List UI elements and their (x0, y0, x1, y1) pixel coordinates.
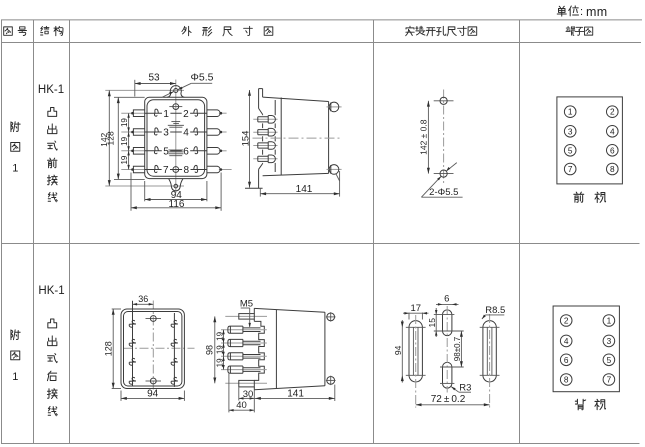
svg-text:53: 53 (148, 72, 160, 83)
svg-text:40: 40 (236, 400, 247, 411)
svg-text:1: 1 (163, 109, 169, 120)
svg-text:94: 94 (393, 345, 403, 355)
svg-text:8: 8 (610, 164, 615, 174)
svg-text:116: 116 (169, 199, 185, 210)
svg-text:2: 2 (610, 107, 615, 117)
svg-text:2: 2 (564, 316, 569, 326)
svg-text:98±0.7: 98±0.7 (453, 336, 462, 361)
svg-text:6: 6 (444, 294, 449, 305)
svg-text:142 ± 0.8: 142 ± 0.8 (419, 119, 429, 155)
svg-text:7: 7 (163, 165, 169, 176)
svg-text:94: 94 (147, 388, 159, 399)
svg-text:6: 6 (564, 355, 569, 365)
svg-text:19: 19 (216, 358, 225, 367)
svg-text:128: 128 (106, 131, 116, 145)
svg-text:mm: mm (586, 5, 607, 19)
svg-text:Φ5.5: Φ5.5 (191, 72, 214, 84)
svg-text:7: 7 (568, 164, 573, 174)
svg-text:17: 17 (411, 303, 422, 314)
svg-text:1: 1 (607, 316, 612, 326)
svg-text:19: 19 (216, 331, 225, 340)
svg-text:1: 1 (12, 371, 18, 383)
svg-text:4: 4 (564, 336, 569, 346)
svg-text:15: 15 (427, 318, 437, 328)
svg-text:8: 8 (564, 375, 569, 385)
svg-text:19: 19 (120, 136, 129, 145)
svg-text:3: 3 (163, 128, 169, 139)
svg-text:HK-1: HK-1 (38, 285, 64, 297)
svg-text:154: 154 (240, 131, 251, 147)
svg-text:5: 5 (163, 146, 169, 157)
svg-text:98: 98 (204, 345, 214, 355)
svg-text:3: 3 (568, 126, 573, 136)
svg-text:R3: R3 (459, 383, 471, 394)
svg-text:5: 5 (568, 145, 573, 155)
svg-text:1: 1 (568, 107, 573, 117)
svg-text:2-Φ5.5: 2-Φ5.5 (429, 187, 458, 198)
svg-text:72 ± 0.2: 72 ± 0.2 (431, 394, 466, 405)
svg-text:36: 36 (138, 294, 148, 304)
svg-text:R8.5: R8.5 (485, 305, 505, 316)
svg-text:HK-1: HK-1 (38, 84, 64, 96)
svg-text:1: 1 (12, 162, 18, 174)
svg-text:7: 7 (607, 375, 612, 385)
svg-text:6: 6 (183, 146, 189, 157)
svg-text:4: 4 (183, 128, 189, 139)
svg-text:19: 19 (120, 118, 129, 127)
svg-text:8: 8 (184, 165, 190, 176)
svg-text:3: 3 (607, 336, 612, 346)
svg-text:19: 19 (216, 345, 225, 354)
svg-text:4: 4 (610, 126, 615, 136)
svg-text:128: 128 (103, 341, 113, 356)
svg-text:141: 141 (287, 389, 304, 400)
svg-text:6: 6 (610, 145, 615, 155)
svg-text::: : (580, 6, 583, 18)
svg-text:30: 30 (243, 389, 254, 400)
svg-text:5: 5 (607, 355, 612, 365)
svg-text:2: 2 (183, 109, 189, 120)
svg-text:141: 141 (296, 184, 313, 195)
svg-text:19: 19 (120, 155, 129, 164)
